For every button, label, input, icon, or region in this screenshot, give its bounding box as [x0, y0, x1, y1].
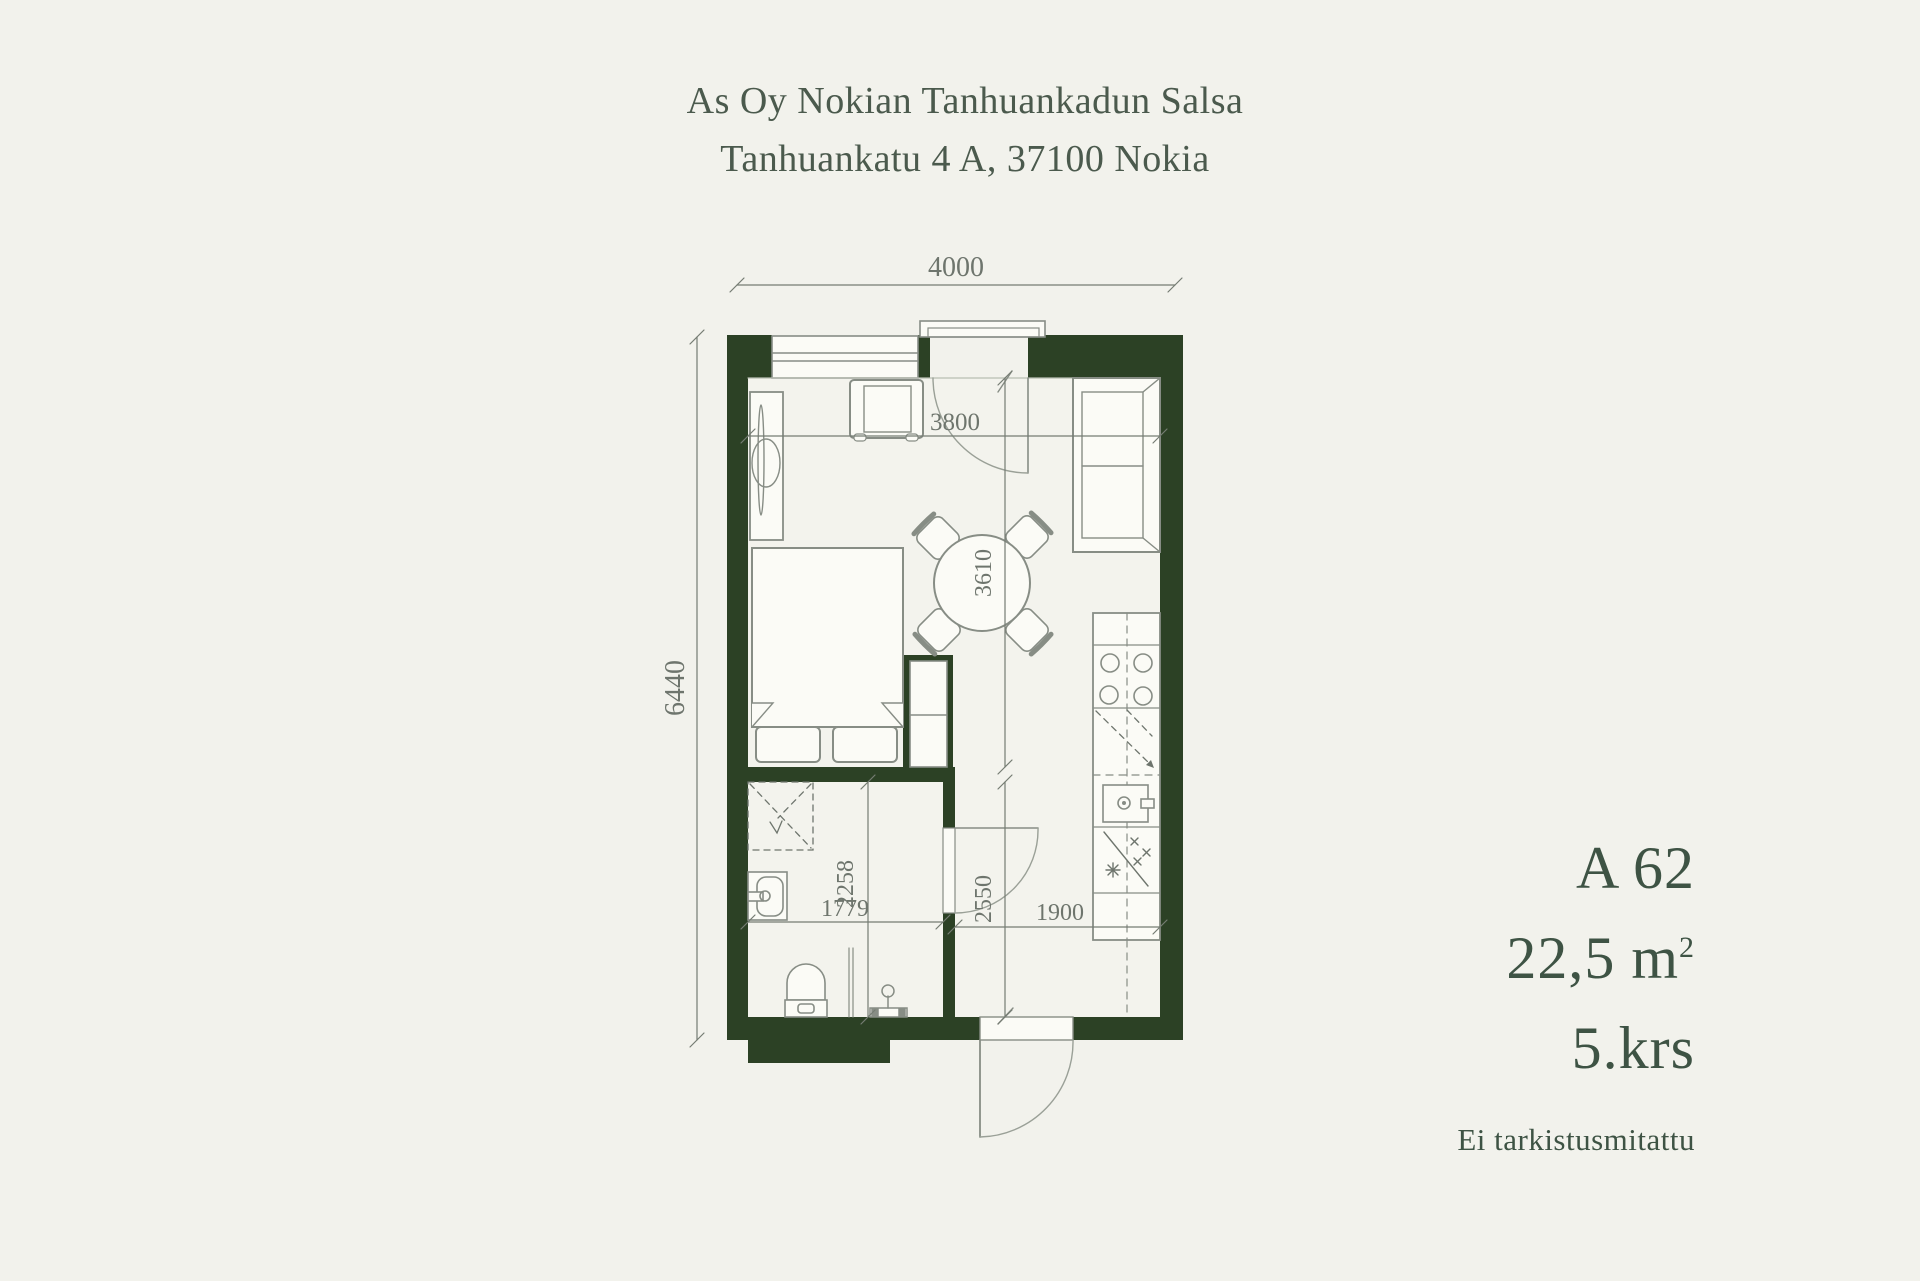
entrance-door [980, 1008, 1073, 1137]
dresser-with-mirror [750, 392, 783, 540]
toilet [785, 964, 827, 1017]
pillow [833, 727, 897, 762]
armchair [850, 380, 923, 441]
dim-hall-height: 2550 [971, 875, 997, 923]
dim-living-width: 3800 [930, 409, 980, 436]
page: As Oy Nokian Tanhuankadun Salsa Tanhuank… [0, 0, 1920, 1281]
freezer-snowflake-icon [1106, 863, 1120, 877]
dim-total-height: 6440 [660, 660, 691, 716]
dim-kitchen-width: 1900 [1036, 900, 1084, 926]
washbasin [748, 872, 787, 920]
floor-plan: 4000 6440 3800 3610 2258 1779 2550 1900 [0, 0, 1920, 1281]
dim-total-width: 4000 [928, 252, 984, 283]
dim-bath-width: 1779 [821, 896, 869, 922]
wardrobe [910, 661, 947, 767]
dim-living-height: 3610 [971, 549, 997, 597]
window [772, 336, 918, 378]
pillow [756, 727, 820, 762]
sofa [1073, 378, 1160, 552]
kitchen-sink [1103, 785, 1154, 822]
